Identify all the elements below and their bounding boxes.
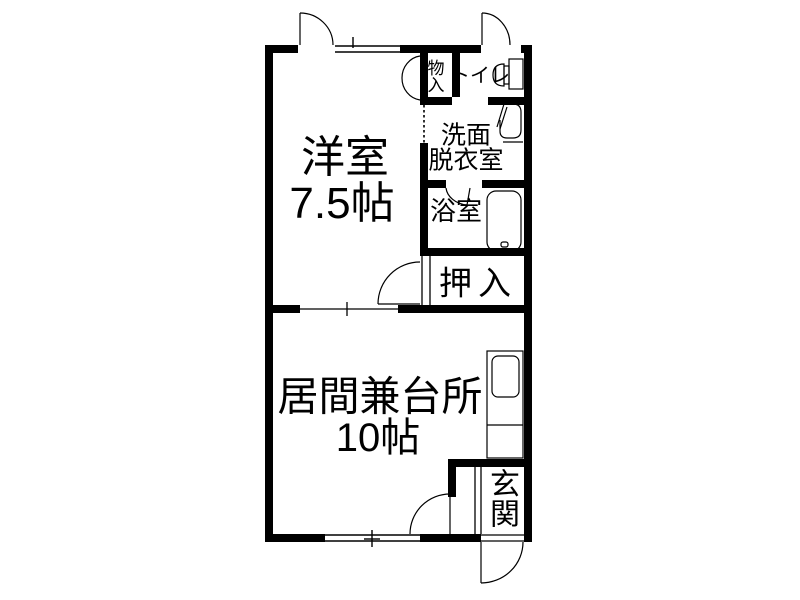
room-label-entrance: 玄関 (486, 468, 516, 528)
window-bottom (325, 530, 420, 547)
room-size-western: 7.5帖 (289, 182, 394, 226)
room-label-closet: 押入 (439, 267, 517, 300)
kitchen-sink-icon (492, 356, 519, 397)
western-room-exterior-door (300, 13, 333, 45)
bathtub-icon (487, 191, 521, 251)
room-label-washroom-line1: 洗面 (441, 124, 491, 149)
storage-double-door (402, 56, 420, 100)
kitchen-counter-icon (487, 351, 523, 458)
front-entrance-door (481, 542, 523, 583)
entrance-step (475, 467, 481, 534)
entrance-opening (481, 535, 524, 541)
toilet-exterior-door (482, 13, 510, 45)
room-label-washroom-line2: 脱衣室 (428, 149, 503, 174)
room-size-living: 10帖 (336, 418, 421, 458)
closet-partition (422, 256, 430, 305)
washbasin-icon (497, 104, 523, 142)
room-label-storage: 物入 (426, 59, 443, 93)
floor-plan: 洋室 7.5帖 居間兼台所 10帖 物入 トイレ 洗面 脱衣室 浴室 押入 玄関 (0, 0, 800, 600)
living-western-door (378, 262, 420, 304)
window-top (335, 37, 400, 52)
floor-plan-drawing (0, 0, 800, 600)
room-label-toilet: トイレ (450, 66, 510, 86)
entrance-inner-door (410, 494, 450, 534)
room-label-bathroom: 浴室 (430, 198, 482, 224)
room-label-western: 洋室 (301, 136, 389, 180)
room-label-living: 居間兼台所 (278, 377, 483, 418)
